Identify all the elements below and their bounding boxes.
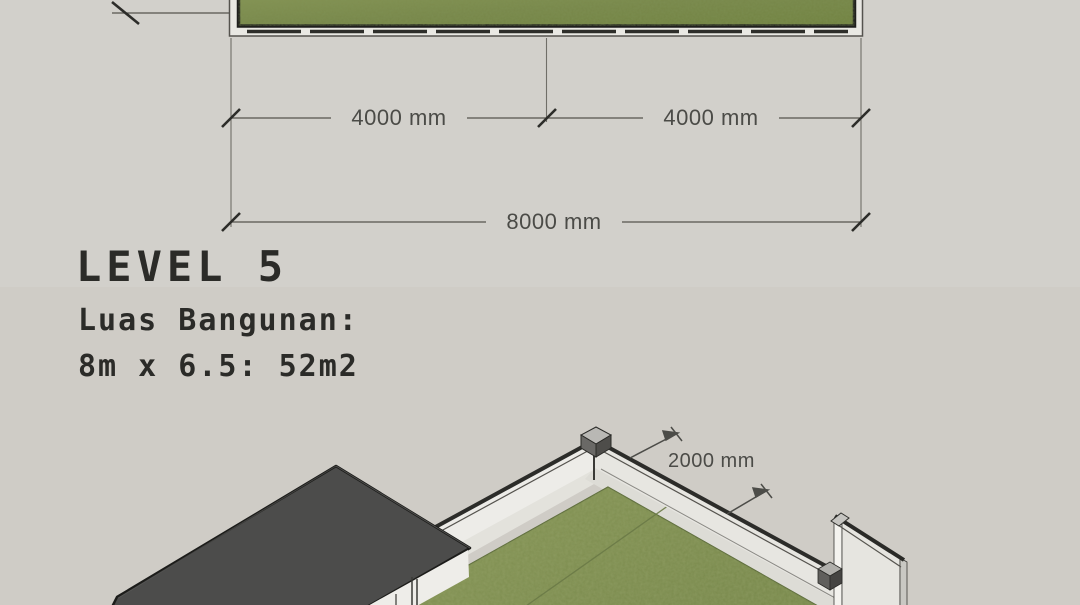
architectural-sheet: 4000 mm 4000 mm 8000 mm 2000 mm LEVEL 5 … xyxy=(0,0,1080,605)
bulkhead-wall xyxy=(831,513,907,605)
isometric-view xyxy=(112,427,907,605)
dim-label-4000-left: 4000 mm xyxy=(331,105,467,131)
plan-view xyxy=(230,0,863,36)
area-label: Luas Bangunan: xyxy=(78,303,359,338)
dim-label-4000-right: 4000 mm xyxy=(643,105,779,131)
plan-grass-texture xyxy=(239,0,855,26)
dim-label-2000: 2000 mm xyxy=(668,450,755,473)
dim-label-8000: 8000 mm xyxy=(486,209,622,235)
level-title: LEVEL 5 xyxy=(76,242,288,291)
area-value: 8m x 6.5: 52m2 xyxy=(78,349,359,384)
